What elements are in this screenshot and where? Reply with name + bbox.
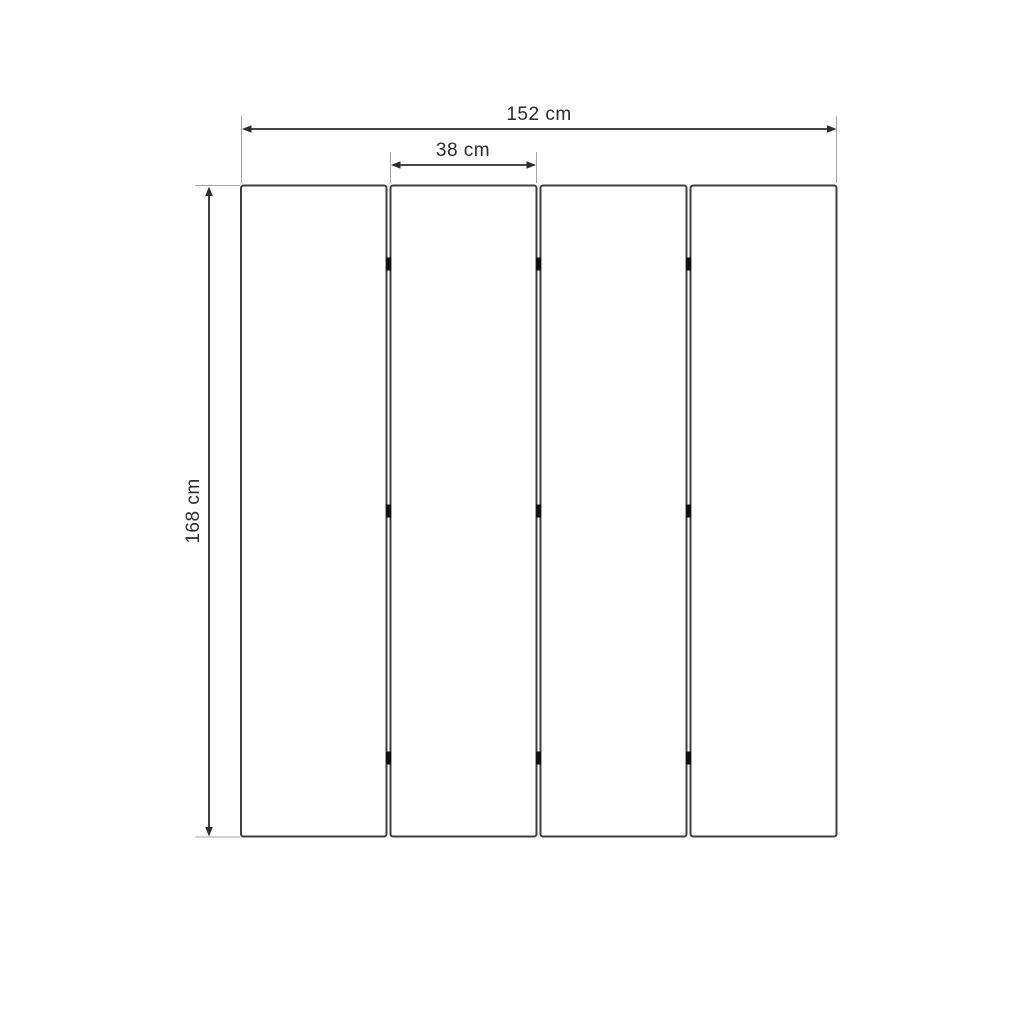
- hinge: [686, 505, 691, 518]
- hinge: [536, 505, 541, 518]
- folding-screen-drawing: 152 cm 38 cm 168 cm: [0, 0, 1024, 1024]
- total-width-label: 152 cm: [506, 104, 571, 125]
- hinge: [386, 505, 391, 518]
- hinge: [686, 752, 691, 765]
- height-label: 168 cm: [183, 478, 204, 543]
- hinge: [386, 752, 391, 765]
- hinge: [386, 258, 391, 271]
- arrow-left-icon: [391, 161, 401, 169]
- hinge: [536, 752, 541, 765]
- hinge: [536, 258, 541, 271]
- dimension-total-width: 152 cm: [242, 104, 837, 183]
- arrow-left-icon: [242, 125, 252, 133]
- hinge: [686, 258, 691, 271]
- panel-3: [541, 186, 687, 837]
- panel-width-label: 38 cm: [436, 140, 490, 161]
- arrow-up-icon: [205, 187, 213, 197]
- dimension-diagram: 152 cm 38 cm 168 cm: [0, 0, 1024, 1024]
- dimension-height: 168 cm: [183, 186, 240, 838]
- arrow-right-icon: [827, 125, 837, 133]
- dimension-panel-width: 38 cm: [391, 140, 537, 183]
- arrow-right-icon: [527, 161, 537, 169]
- arrow-down-icon: [205, 827, 213, 837]
- panel-4: [691, 186, 837, 837]
- panel-2: [391, 186, 537, 837]
- panel-1: [241, 186, 387, 837]
